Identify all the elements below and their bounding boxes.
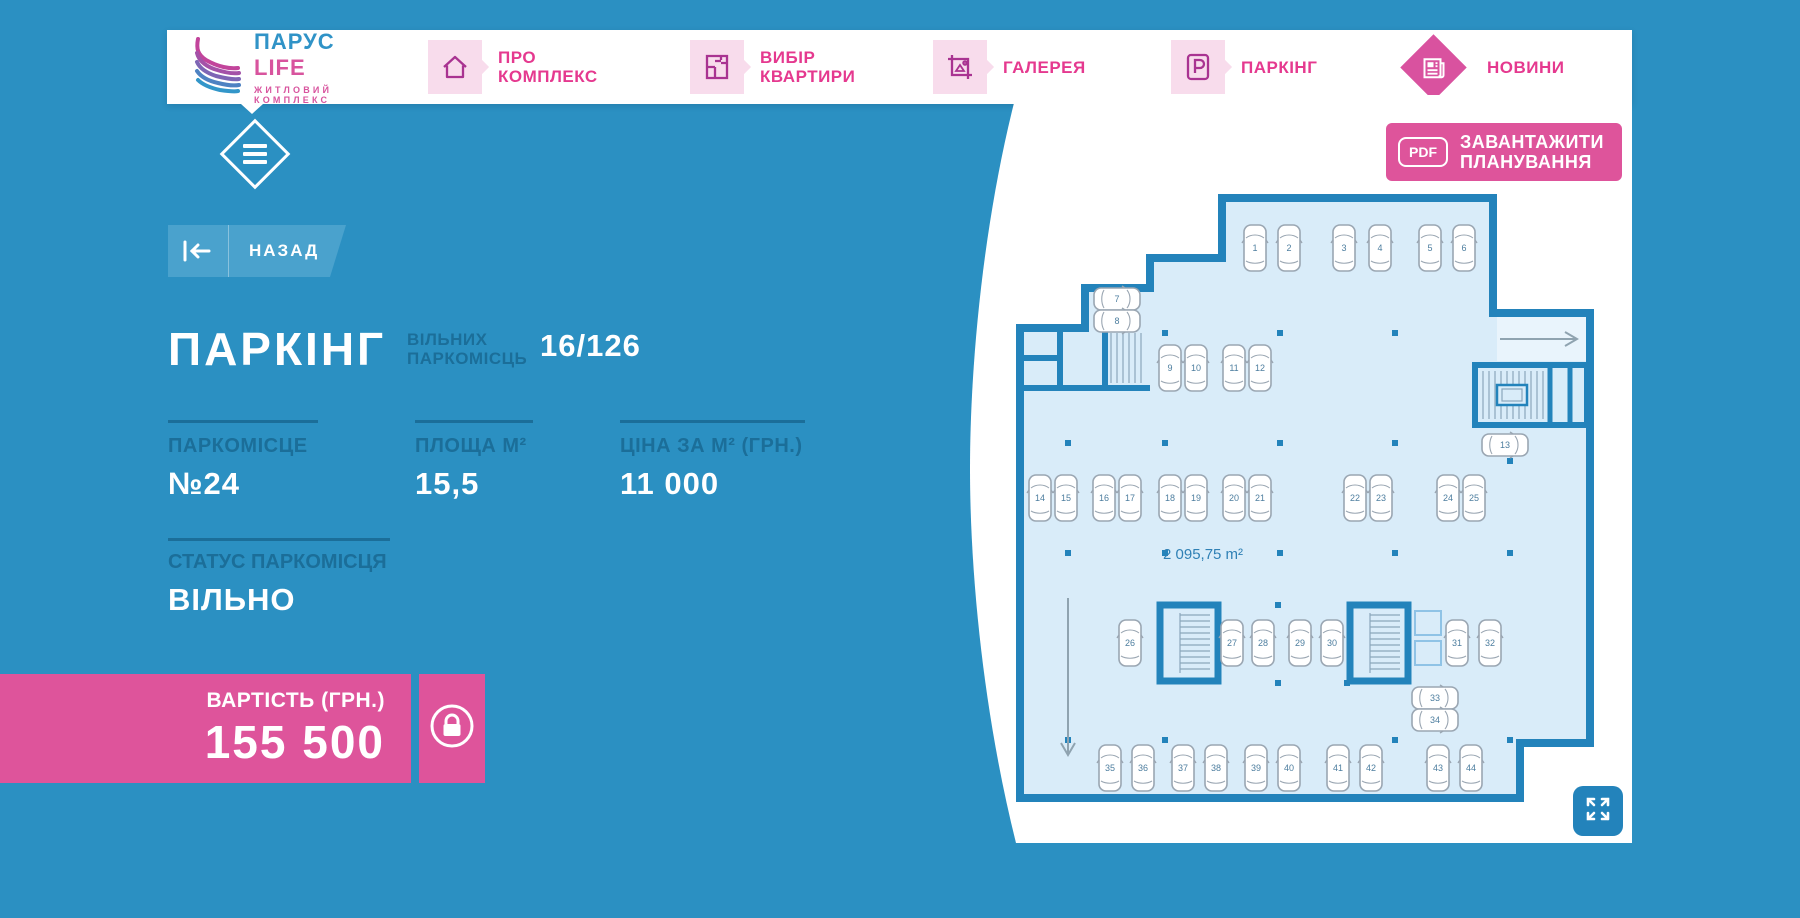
svg-text:6: 6 xyxy=(1461,243,1466,253)
stat-label: ЦІНА ЗА М² (ГРН.) xyxy=(620,435,805,458)
nav-item-about[interactable]: ПРО КОМПЛЕКС xyxy=(428,30,618,104)
parking-spot-15[interactable]: 15 xyxy=(1053,475,1079,521)
parking-spot-22[interactable]: 22 xyxy=(1342,475,1368,521)
free-spaces-value: 16/126 xyxy=(540,328,641,364)
svg-text:15: 15 xyxy=(1061,493,1071,503)
svg-text:30: 30 xyxy=(1327,638,1337,648)
parking-spot-38[interactable]: 38 xyxy=(1203,745,1229,791)
stat-area: ПЛОЩА М² 15,5 xyxy=(415,420,533,502)
stat-space-number: ПАРКОМІСЦЕ №24 xyxy=(168,420,318,502)
parking-spot-28[interactable]: 28 xyxy=(1250,620,1276,666)
download-label-line1: ЗАВАНТАЖИТИ xyxy=(1460,132,1604,152)
parking-spot-12[interactable]: 12 xyxy=(1247,345,1273,391)
stat-label: ПЛОЩА М² xyxy=(415,435,533,458)
svg-text:31: 31 xyxy=(1452,638,1462,648)
parking-spot-30[interactable]: 30 xyxy=(1319,620,1345,666)
parking-spot-31[interactable]: 31 xyxy=(1444,620,1470,666)
parking-spot-43[interactable]: 43 xyxy=(1425,745,1451,791)
svg-text:27: 27 xyxy=(1227,638,1237,648)
gallery-icon xyxy=(933,40,987,94)
parking-spot-29[interactable]: 29 xyxy=(1287,620,1313,666)
lock-icon xyxy=(428,702,476,755)
svg-text:32: 32 xyxy=(1485,638,1495,648)
menu-notch xyxy=(241,104,263,114)
svg-text:21: 21 xyxy=(1255,493,1265,503)
svg-text:4: 4 xyxy=(1377,243,1382,253)
logo-title: ПАРУС LIFE xyxy=(254,29,390,81)
parking-spot-32[interactable]: 32 xyxy=(1477,620,1503,666)
svg-text:29: 29 xyxy=(1295,638,1305,648)
svg-text:2: 2 xyxy=(1286,243,1291,253)
svg-text:24: 24 xyxy=(1443,493,1453,503)
house-icon xyxy=(428,40,482,94)
download-label-line2: ПЛАНУВАННЯ xyxy=(1460,152,1604,172)
parking-spot-36[interactable]: 36 xyxy=(1130,745,1156,791)
svg-text:8: 8 xyxy=(1114,316,1119,326)
parking-spot-2[interactable]: 2 xyxy=(1276,225,1302,271)
parking-spot-13[interactable]: 13 xyxy=(1482,432,1528,458)
stat-value: 11 000 xyxy=(620,466,805,502)
svg-text:40: 40 xyxy=(1284,763,1294,773)
parking-spot-7[interactable]: 7 xyxy=(1094,286,1140,312)
svg-text:19: 19 xyxy=(1191,493,1201,503)
parking-spot-37[interactable]: 37 xyxy=(1170,745,1196,791)
stat-price-per-m2: ЦІНА ЗА М² (ГРН.) 11 000 xyxy=(620,420,805,502)
svg-text:9: 9 xyxy=(1167,363,1172,373)
fullscreen-button[interactable] xyxy=(1573,786,1623,836)
plan-area-label: 2 095,75 m² xyxy=(1163,546,1243,563)
back-button[interactable]: НАЗАД xyxy=(168,225,346,277)
stat-label: ПАРКОМІСЦЕ xyxy=(168,435,318,458)
parking-spot-1[interactable]: 1 xyxy=(1242,225,1268,271)
svg-text:26: 26 xyxy=(1125,638,1135,648)
parking-spot-35[interactable]: 35 xyxy=(1097,745,1123,791)
nav-item-label: ВИБІР КВАРТИРИ xyxy=(760,48,880,86)
parking-spot-33[interactable]: 33 xyxy=(1412,685,1458,711)
nav-item-gallery[interactable]: ГАЛЕРЕЯ xyxy=(933,30,1086,104)
svg-text:36: 36 xyxy=(1138,763,1148,773)
parking-spot-26[interactable]: 26 xyxy=(1117,620,1143,666)
svg-text:12: 12 xyxy=(1255,363,1265,373)
parking-spot-18[interactable]: 18 xyxy=(1157,475,1183,521)
price-block: ВАРТІСТЬ (ГРН.) 155 500 xyxy=(0,674,411,783)
parking-spot-10[interactable]: 10 xyxy=(1183,345,1209,391)
svg-text:42: 42 xyxy=(1366,763,1376,773)
parking-spot-25[interactable]: 25 xyxy=(1461,475,1487,521)
nav-item-label: ПРО КОМПЛЕКС xyxy=(498,48,618,86)
svg-text:25: 25 xyxy=(1469,493,1479,503)
svg-text:3: 3 xyxy=(1341,243,1346,253)
svg-text:41: 41 xyxy=(1333,763,1343,773)
floorplan-icon xyxy=(690,40,744,94)
stat-value: №24 xyxy=(168,466,318,502)
nav-item-label: ПАРКІНГ xyxy=(1241,58,1317,77)
free-spaces-label: ВІЛЬНИХ ПАРКОМІСЦЬ xyxy=(407,330,527,368)
parking-spot-19[interactable]: 19 xyxy=(1183,475,1209,521)
parking-spot-4[interactable]: 4 xyxy=(1367,225,1393,271)
parking-spot-39[interactable]: 39 xyxy=(1243,745,1269,791)
svg-text:38: 38 xyxy=(1211,763,1221,773)
svg-text:13: 13 xyxy=(1500,440,1510,450)
svg-text:43: 43 xyxy=(1433,763,1443,773)
svg-text:17: 17 xyxy=(1125,493,1135,503)
parking-spot-23[interactable]: 23 xyxy=(1368,475,1394,521)
parking-spot-27[interactable]: 27 xyxy=(1219,620,1245,666)
parking-spot-8[interactable]: 8 xyxy=(1094,308,1140,334)
nav-item-label: ГАЛЕРЕЯ xyxy=(1003,58,1086,77)
nav-item-parking[interactable]: ПАРКІНГ xyxy=(1171,30,1317,104)
parking-spot-5[interactable]: 5 xyxy=(1417,225,1443,271)
parking-spot-16[interactable]: 16 xyxy=(1091,475,1117,521)
parking-spot-11[interactable]: 11 xyxy=(1221,345,1247,391)
parking-icon xyxy=(1171,40,1225,94)
expand-icon xyxy=(1582,793,1614,830)
svg-text:1: 1 xyxy=(1252,243,1257,253)
svg-text:35: 35 xyxy=(1105,763,1115,773)
parking-spot-44[interactable]: 44 xyxy=(1458,745,1484,791)
svg-text:18: 18 xyxy=(1165,493,1175,503)
nav-item-apartments[interactable]: ВИБІР КВАРТИРИ xyxy=(690,30,880,104)
status-label: СТАТУС ПАРКОМІСЦЯ xyxy=(168,551,390,574)
page-title: ПАРКІНГ xyxy=(168,322,386,376)
parking-spot-24[interactable]: 24 xyxy=(1435,475,1461,521)
parking-spot-20[interactable]: 20 xyxy=(1221,475,1247,521)
status-block: СТАТУС ПАРКОМІСЦЯ ВІЛЬНО xyxy=(168,538,390,618)
parking-spot-6[interactable]: 6 xyxy=(1451,225,1477,271)
back-arrow-icon xyxy=(168,240,228,262)
svg-text:22: 22 xyxy=(1350,493,1360,503)
logo[interactable]: ПАРУС LIFE ЖИТЛОВИЙ КОМПЛЕКС xyxy=(190,36,390,98)
parking-spot-3[interactable]: 3 xyxy=(1331,225,1357,271)
parking-floor-plan[interactable]: 1234567891011121314151617181920212223242… xyxy=(1005,193,1625,815)
parking-spot-34[interactable]: 34 xyxy=(1412,707,1458,733)
svg-text:11: 11 xyxy=(1229,363,1238,373)
price-label: ВАРТІСТЬ (ГРН.) xyxy=(207,689,385,713)
svg-text:34: 34 xyxy=(1430,715,1440,725)
parking-spot-42[interactable]: 42 xyxy=(1358,745,1384,791)
nav-item-label: НОВИНИ xyxy=(1487,58,1565,77)
status-value: ВІЛЬНО xyxy=(168,582,390,618)
lock-button[interactable] xyxy=(419,674,485,783)
parking-spot-17[interactable]: 17 xyxy=(1117,475,1143,521)
svg-text:37: 37 xyxy=(1178,763,1188,773)
back-button-label: НАЗАД xyxy=(229,241,319,261)
svg-text:44: 44 xyxy=(1466,763,1476,773)
price-value: 155 500 xyxy=(205,715,385,769)
news-icon xyxy=(1400,34,1466,100)
download-plan-button[interactable]: PDF ЗАВАНТАЖИТИ ПЛАНУВАННЯ xyxy=(1386,123,1622,181)
nav-item-news[interactable]: НОВИНИ xyxy=(1396,30,1565,104)
parking-spot-9[interactable]: 9 xyxy=(1157,345,1183,391)
parking-spot-40[interactable]: 40 xyxy=(1276,745,1302,791)
pdf-icon: PDF xyxy=(1398,137,1448,167)
parking-spot-14[interactable]: 14 xyxy=(1027,475,1053,521)
svg-text:5: 5 xyxy=(1427,243,1432,253)
svg-text:28: 28 xyxy=(1258,638,1268,648)
svg-text:33: 33 xyxy=(1430,693,1440,703)
svg-text:20: 20 xyxy=(1229,493,1239,503)
logo-subtitle: ЖИТЛОВИЙ КОМПЛЕКС xyxy=(254,85,390,105)
svg-text:39: 39 xyxy=(1251,763,1261,773)
svg-text:7: 7 xyxy=(1114,294,1119,304)
stat-value: 15,5 xyxy=(415,466,533,502)
menu-button[interactable] xyxy=(220,119,291,190)
parking-spot-41[interactable]: 41 xyxy=(1325,745,1351,791)
svg-text:23: 23 xyxy=(1376,493,1386,503)
svg-text:10: 10 xyxy=(1191,363,1201,373)
parking-spot-21[interactable]: 21 xyxy=(1247,475,1273,521)
logo-sail-icon xyxy=(190,35,242,100)
hamburger-icon xyxy=(243,144,267,164)
svg-text:14: 14 xyxy=(1035,493,1045,503)
svg-text:16: 16 xyxy=(1099,493,1109,503)
